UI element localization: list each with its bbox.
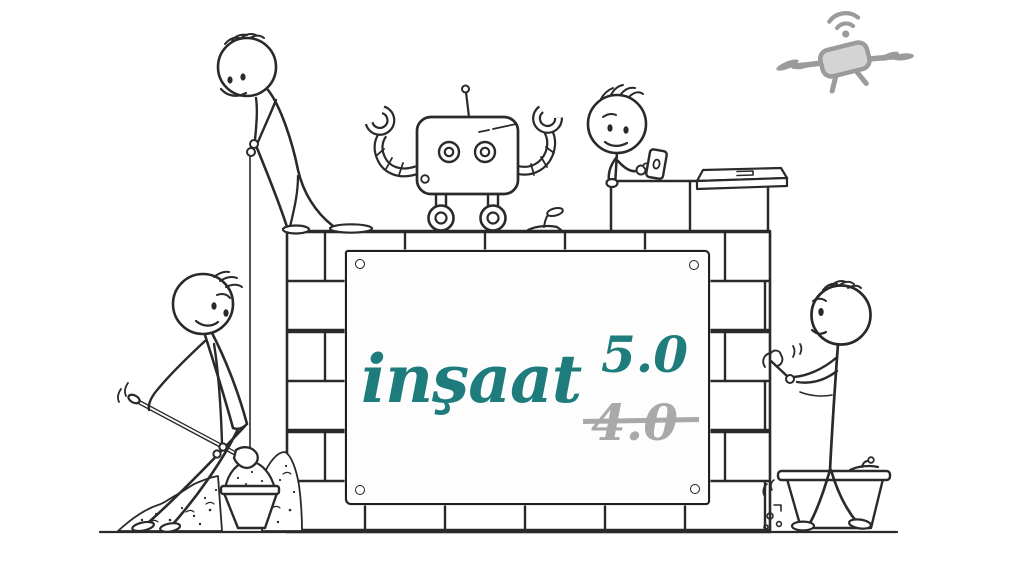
bolt-icon [690, 484, 700, 494]
bolt-icon [689, 260, 699, 270]
eye [227, 76, 232, 83]
eye [223, 309, 228, 317]
banner-sign: inşaat 5.0 4.0 [345, 250, 710, 505]
head [588, 95, 646, 153]
trowel-icon [771, 361, 787, 376]
eye [240, 73, 245, 80]
slab [697, 168, 787, 189]
claw [367, 108, 395, 135]
shoe [283, 226, 309, 234]
drone-icon [767, 0, 919, 104]
eye [211, 302, 216, 310]
antenna [466, 92, 469, 117]
hand [250, 140, 258, 148]
shoe [330, 224, 372, 232]
plumb-bob [247, 148, 255, 156]
strikethrough-line [583, 417, 699, 424]
hand [219, 443, 226, 450]
trowel-icon [850, 466, 878, 470]
shovel-blade [234, 447, 258, 468]
cartoon-construction-scene: inşaat 5.0 4.0 [0, 0, 1024, 576]
wifi-icon [828, 10, 862, 41]
sign-title: inşaat [361, 346, 581, 412]
claw [532, 107, 560, 134]
eye [623, 126, 628, 133]
hand [213, 450, 220, 457]
smartphone [646, 149, 668, 180]
robot [367, 86, 560, 231]
worker-with-smartphone [588, 85, 667, 191]
bolt-icon [354, 258, 366, 270]
head [218, 38, 276, 96]
mortar-tub [763, 457, 890, 529]
wall-raised-course [607, 168, 788, 231]
trowel-icon [528, 207, 564, 230]
eye [607, 124, 612, 131]
bolt-icon [355, 485, 365, 495]
eye [818, 308, 823, 316]
shoe [792, 522, 814, 531]
sign-new-version: 5.0 [601, 330, 688, 380]
shovel-grip [127, 393, 141, 405]
robot-body [417, 117, 518, 194]
